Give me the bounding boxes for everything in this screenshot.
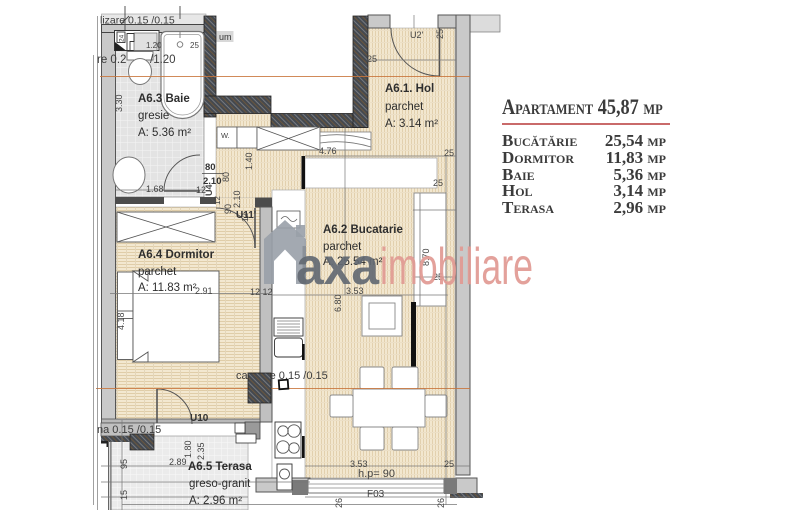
svg-text:U10: U10 bbox=[190, 413, 209, 424]
svg-text:2.10: 2.10 bbox=[232, 190, 242, 208]
svg-text:A: 5.36 m²: A: 5.36 m² bbox=[138, 127, 191, 139]
svg-text:greso-granit: greso-granit bbox=[189, 478, 251, 490]
svg-text:4.18: 4.18 bbox=[116, 312, 126, 330]
svg-text:15: 15 bbox=[119, 490, 129, 500]
svg-text:h.p= 90: h.p= 90 bbox=[358, 468, 395, 480]
svg-text:1.20: 1.20 bbox=[146, 41, 162, 50]
svg-text:25: 25 bbox=[435, 29, 445, 39]
svg-text:lizare 0.15 /0.15: lizare 0.15 /0.15 bbox=[100, 15, 175, 27]
svg-text:imobiliare: imobiliare bbox=[380, 238, 533, 296]
svg-text:na 0.15 /0.15: na 0.15 /0.15 bbox=[97, 424, 161, 436]
svg-text:26: 26 bbox=[334, 498, 344, 508]
svg-text:25: 25 bbox=[444, 459, 454, 469]
svg-text:4.76: 4.76 bbox=[319, 146, 337, 156]
svg-text:2.91: 2.91 bbox=[195, 286, 213, 296]
svg-text:re 0.2: re 0.2 bbox=[97, 54, 126, 66]
svg-text:26: 26 bbox=[436, 498, 446, 508]
svg-text:parchet: parchet bbox=[385, 101, 424, 113]
svg-text:90: 90 bbox=[223, 204, 233, 214]
svg-text:24: 24 bbox=[119, 34, 126, 42]
svg-text:3.30: 3.30 bbox=[114, 94, 124, 112]
svg-text:A6.4 Dormitor: A6.4 Dormitor bbox=[138, 249, 215, 261]
svg-text:A6.5 Terasa: A6.5 Terasa bbox=[188, 461, 252, 473]
svg-text:A: 3.14 m²: A: 3.14 m² bbox=[385, 118, 438, 130]
svg-text:um: um bbox=[219, 32, 232, 42]
svg-text:25: 25 bbox=[367, 54, 377, 64]
svg-text:1.68: 1.68 bbox=[146, 184, 164, 194]
svg-text:12 12: 12 12 bbox=[250, 287, 273, 297]
svg-text:axa: axa bbox=[296, 238, 380, 296]
svg-text:1.80: 1.80 bbox=[183, 440, 193, 458]
svg-text:2.35: 2.35 bbox=[196, 442, 206, 460]
svg-text:1.40: 1.40 bbox=[244, 152, 254, 170]
svg-text:6.80: 6.80 bbox=[333, 294, 343, 312]
svg-text:/1.20: /1.20 bbox=[150, 54, 176, 66]
svg-text:A6.3 Baie: A6.3 Baie bbox=[138, 93, 190, 105]
svg-text:W.: W. bbox=[221, 131, 230, 140]
svg-text:80: 80 bbox=[205, 162, 216, 173]
svg-text:2.10: 2.10 bbox=[203, 176, 222, 187]
svg-text:12: 12 bbox=[241, 213, 250, 222]
svg-text:A6.1. Hol: A6.1. Hol bbox=[385, 83, 434, 95]
svg-text:A: 2.96 m²: A: 2.96 m² bbox=[189, 495, 242, 507]
svg-text:parchet: parchet bbox=[138, 266, 177, 278]
svg-text:25: 25 bbox=[190, 41, 199, 50]
svg-text:U2': U2' bbox=[410, 30, 424, 40]
svg-text:F03: F03 bbox=[367, 489, 385, 500]
svg-text:12: 12 bbox=[213, 196, 222, 205]
svg-text:95: 95 bbox=[119, 459, 129, 469]
svg-text:gresie: gresie bbox=[138, 110, 169, 122]
svg-text:A: 11.83 m²: A: 11.83 m² bbox=[138, 282, 197, 294]
svg-text:25: 25 bbox=[444, 148, 454, 158]
svg-text:25: 25 bbox=[433, 178, 443, 188]
svg-text:A6.2 Bucatarie: A6.2 Bucatarie bbox=[323, 224, 403, 236]
